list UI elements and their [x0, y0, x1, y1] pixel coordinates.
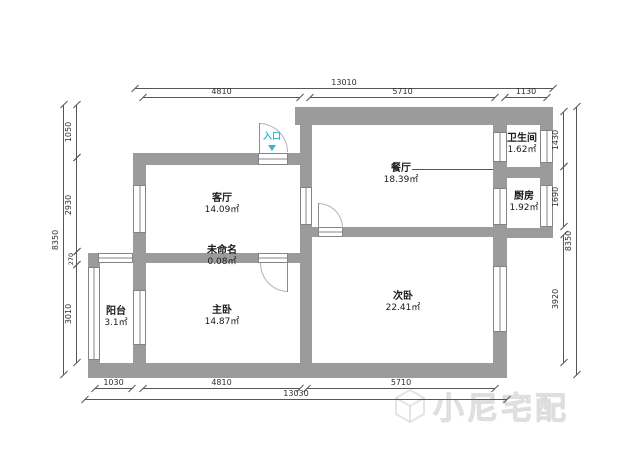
- dim-top-seg1: 4810: [143, 97, 300, 98]
- bathroom-door-opening: [493, 132, 507, 162]
- room-name: 阳台: [104, 306, 127, 318]
- dim-left-seg4: 3010: [76, 265, 77, 363]
- master-door-swing-arc: [260, 263, 288, 292]
- room-label-balcony: 阳台 3.1㎡: [104, 306, 127, 329]
- watermark: 小尼宅配: [392, 383, 569, 428]
- brand-cube-icon: [392, 388, 428, 424]
- room-area: 3.1㎡: [104, 318, 127, 329]
- balcony-top-window: [98, 253, 133, 263]
- room-label-master-bedroom: 主卧 14.87㎡: [205, 305, 240, 328]
- dining-door-leaf: [318, 203, 319, 228]
- dim-bottom-seg2: 4810: [143, 388, 300, 389]
- balcony-left-window: [88, 267, 100, 360]
- room-label-second-bedroom: 次卧 22.41㎡: [386, 291, 421, 314]
- entrance-arrow-icon: [268, 145, 276, 151]
- dim-left-seg2: 2930: [76, 158, 77, 252]
- dim-right-seg2: 1690: [563, 167, 564, 227]
- room-label-bathroom: 卫生间 1.62㎡: [507, 133, 537, 156]
- wall-top-exterior: [295, 107, 553, 125]
- room-name: 客厅: [205, 193, 240, 205]
- room-area: 14.87㎡: [205, 317, 240, 328]
- room-name: 主卧: [205, 305, 240, 317]
- room-area: 1.92㎡: [509, 203, 538, 214]
- dim-bottom-seg3: 5710: [307, 388, 495, 389]
- dim-top-overall: 13010: [135, 88, 553, 89]
- entrance-door-opening: [258, 153, 288, 165]
- dining-door-swing-arc: [318, 203, 343, 228]
- dim-left-seg1: 1050: [76, 105, 77, 158]
- room-area: 1.62㎡: [507, 145, 537, 156]
- entrance-door-leaf: [259, 123, 260, 153]
- entrance-label: 入口: [263, 133, 281, 143]
- room-name: 次卧: [386, 291, 421, 303]
- living-dining-opening: [300, 187, 312, 225]
- balcony-master-window: [133, 290, 146, 345]
- room-label-dining: 餐厅 18.39㎡: [384, 163, 419, 186]
- room-name: 卫生间: [507, 133, 537, 145]
- dim-bottom-overall: 13030: [85, 399, 507, 400]
- dim-bottom-seg1: 1030: [95, 388, 132, 389]
- wall-entry-step: [300, 107, 312, 187]
- room-area: 14.09㎡: [205, 205, 240, 216]
- master-door-opening: [258, 253, 288, 263]
- room-label-kitchen: 厨房 1.92㎡: [509, 191, 538, 214]
- wall-bedroom2-right: [493, 125, 507, 378]
- wall-bottom-exterior: [88, 363, 507, 378]
- dim-right-seg1: 1430: [563, 112, 564, 167]
- room-area: 22.41㎡: [386, 303, 421, 314]
- dining-label-leader-line: [412, 169, 493, 170]
- room-label-unnamed: 未命名 0.08㎡: [207, 245, 237, 268]
- room-name: 厨房: [509, 191, 538, 203]
- bedroom2-window: [493, 266, 507, 332]
- dim-top-seg2: 5710: [310, 97, 495, 98]
- room-label-living: 客厅 14.09㎡: [205, 193, 240, 216]
- kitchen-door-opening: [493, 188, 507, 225]
- master-door-leaf: [287, 263, 288, 292]
- room-name: 餐厅: [384, 163, 419, 175]
- dim-left-overall: 8350: [63, 105, 64, 375]
- floor-plan: 客厅 14.09㎡ 餐厅 18.39㎡ 卫生间 1.62㎡ 厨房 1.92㎡ 次…: [0, 0, 640, 475]
- entrance-marker: 入口: [263, 133, 281, 151]
- dining-door-opening: [318, 227, 343, 237]
- living-left-window: [133, 185, 146, 233]
- wall-center-vertical: [300, 225, 312, 378]
- watermark-brand-text: 小尼宅配: [433, 383, 569, 428]
- dim-top-seg3: 1130: [505, 97, 547, 98]
- room-name: 未命名: [207, 245, 237, 257]
- room-area: 18.39㎡: [384, 175, 419, 186]
- dim-right-overall: 8350: [576, 107, 577, 375]
- room-area: 0.08㎡: [207, 257, 237, 268]
- dim-right-seg3: 3920: [563, 235, 564, 363]
